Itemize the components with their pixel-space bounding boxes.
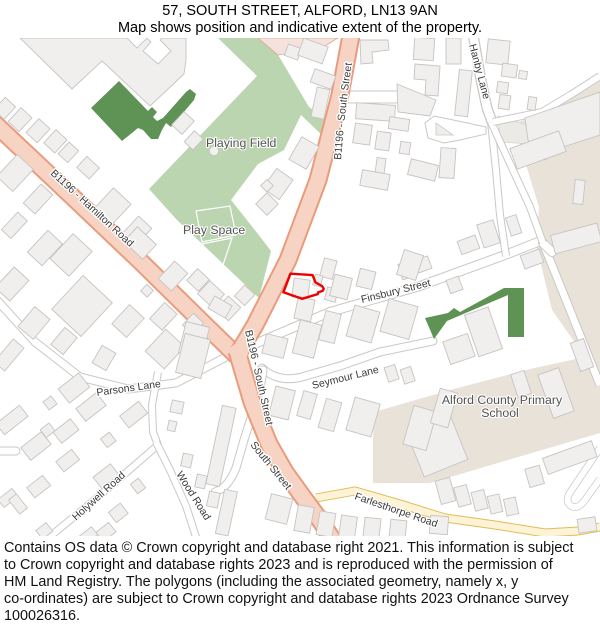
svg-text:Alford County Primary: Alford County Primary — [442, 393, 563, 407]
svg-text:Play Space: Play Space — [183, 223, 245, 237]
svg-text:Playing Field: Playing Field — [206, 136, 277, 150]
svg-text:School: School — [481, 406, 519, 420]
